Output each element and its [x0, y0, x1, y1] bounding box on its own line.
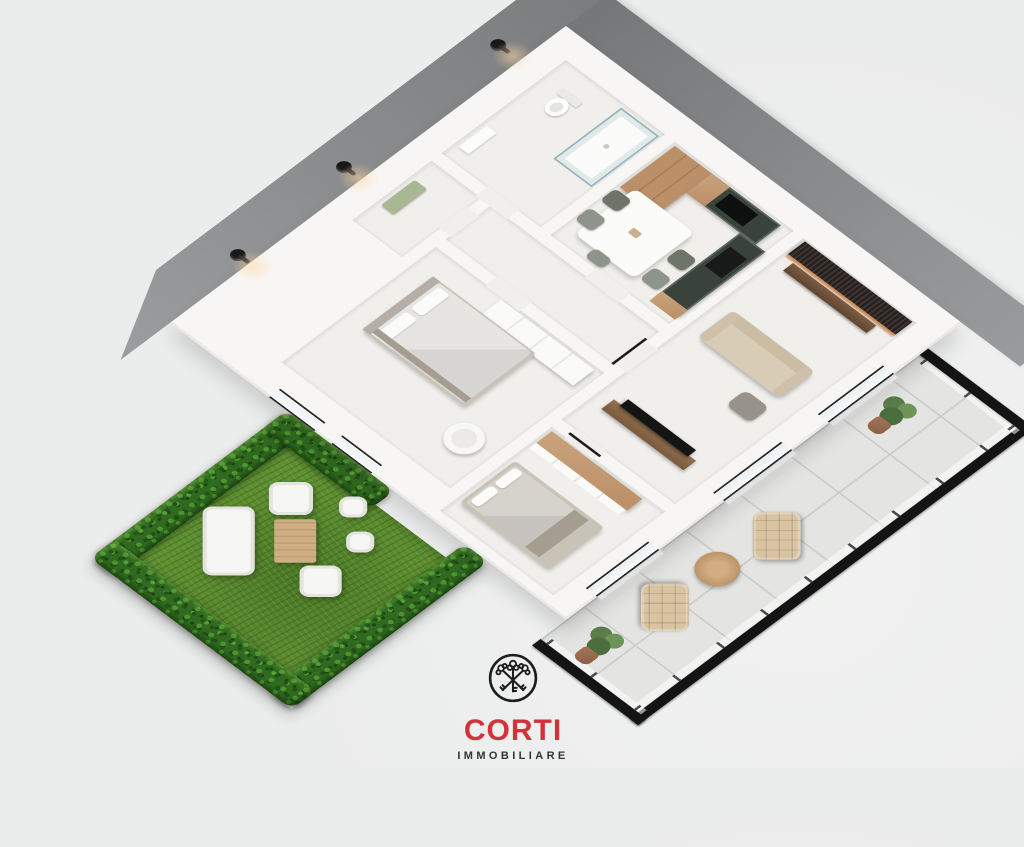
tv-sideboard: [601, 399, 696, 470]
corti-keys-icon: [487, 652, 539, 704]
garden-stool-2: [346, 532, 374, 553]
logo-brand-name: CORTI: [448, 716, 578, 746]
corti-logo: CORTI IMMOBILIARE: [448, 652, 578, 762]
garden-sofa: [203, 506, 255, 575]
pouf: [726, 390, 770, 423]
table-centerpiece: [628, 228, 643, 239]
garden-armchair-2: [300, 566, 342, 598]
balcony-lounge-chair-1: [753, 512, 801, 560]
garden-armchair-1: [269, 482, 313, 515]
floorplan-3d-render-page: { "image_type": "3d-axonometric-floor-pl…: [0, 0, 1024, 768]
garden-coffee-table: [274, 519, 316, 563]
garden-stool-1: [339, 497, 367, 518]
logo-brand-subtitle: IMMOBILIARE: [448, 750, 578, 762]
bedroom1-tub-chair: [434, 416, 493, 461]
green-bench: [381, 180, 428, 215]
balcony-lounge-chair-2: [641, 583, 689, 631]
sofa: [698, 310, 815, 398]
toilet-seat: [547, 100, 566, 114]
bathroom-vanity: [459, 126, 497, 155]
